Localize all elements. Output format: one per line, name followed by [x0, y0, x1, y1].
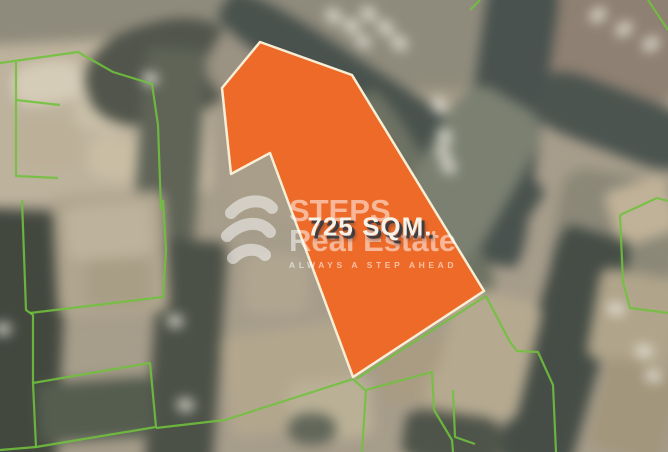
plot-area-label: 725 SQM. [307, 212, 432, 243]
highlighted-plot-polygon [222, 42, 484, 377]
satellite-listing-image[interactable]: STEPS Real Estate ALWAYS A STEP AHEAD 72… [0, 0, 668, 452]
